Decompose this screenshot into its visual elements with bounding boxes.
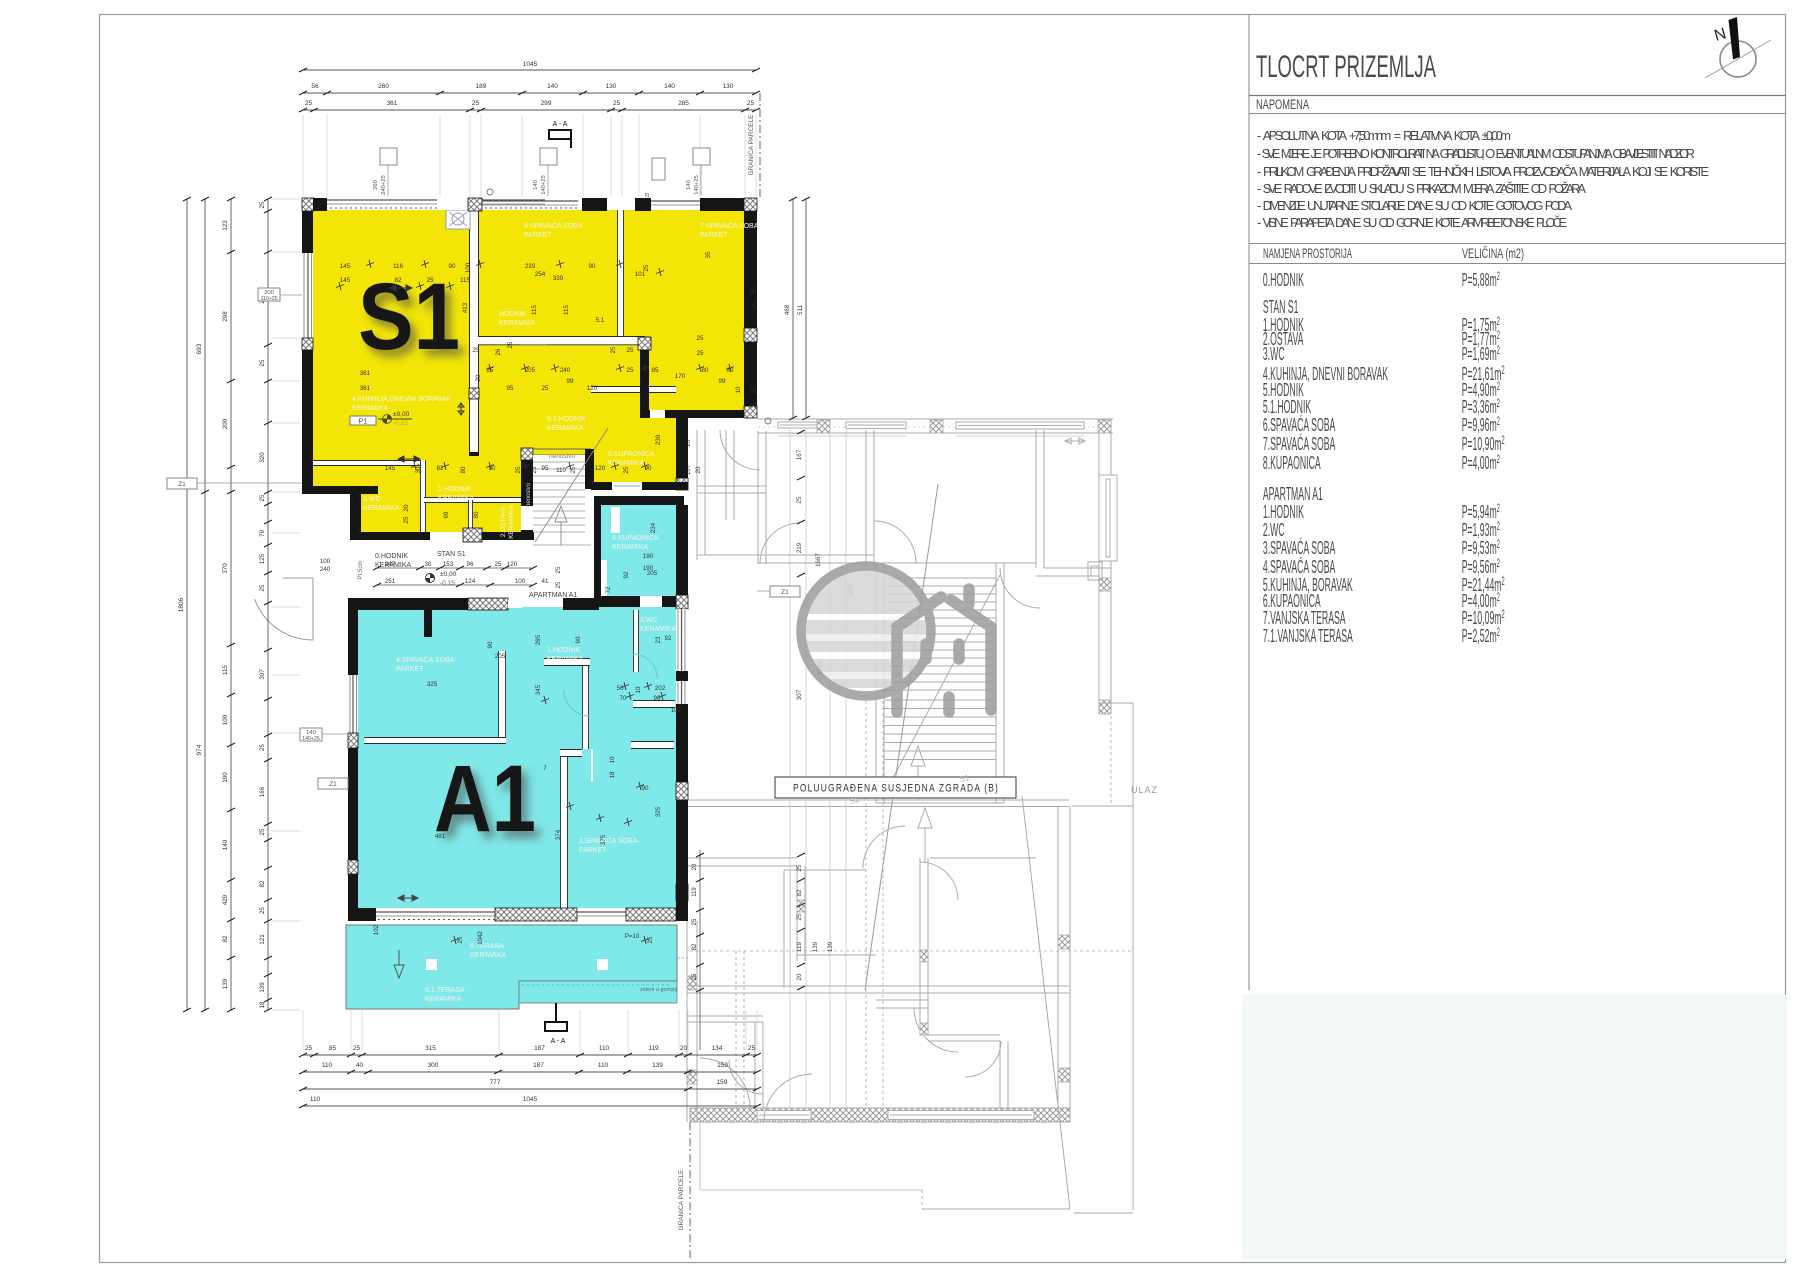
svg-text:166: 166	[259, 786, 266, 797]
svg-text:139: 139	[652, 1062, 663, 1069]
svg-text:25: 25	[259, 828, 266, 835]
svg-text:25: 25	[692, 918, 698, 925]
svg-text:1045: 1045	[523, 61, 538, 68]
svg-text:90: 90	[642, 785, 649, 792]
svg-text:205: 205	[495, 653, 506, 660]
svg-text:82: 82	[222, 935, 229, 942]
svg-text:80: 80	[702, 367, 709, 374]
svg-text:40: 40	[356, 1062, 364, 1069]
svg-text:92: 92	[623, 571, 630, 578]
svg-text:115: 115	[460, 277, 470, 284]
svg-text:190: 190	[643, 553, 654, 560]
svg-text:25: 25	[697, 335, 704, 342]
svg-text:85: 85	[652, 367, 659, 374]
svg-text:339: 339	[553, 275, 564, 282]
svg-text:80: 80	[473, 511, 480, 518]
svg-text:240+25: 240+25	[381, 175, 387, 195]
svg-text:KERAMIKA: KERAMIKA	[608, 460, 645, 467]
svg-text:140+25: 140+25	[302, 736, 320, 742]
svg-text:777: 777	[490, 1079, 501, 1086]
svg-text:POLUUGRAĐENA SUSJEDNA ZGRADA (: POLUUGRAĐENA SUSJEDNA ZGRADA (B)	[793, 783, 999, 795]
svg-text:361: 361	[360, 385, 371, 392]
svg-text:140: 140	[222, 839, 229, 850]
svg-text:25: 25	[747, 100, 755, 107]
svg-text:429: 429	[222, 894, 229, 905]
svg-text:234: 234	[650, 522, 657, 533]
svg-text:P=5,88m2: P=5,88m2	[1462, 270, 1500, 291]
svg-text:20: 20	[403, 504, 410, 511]
svg-text:693: 693	[196, 343, 203, 354]
svg-text:23: 23	[655, 636, 662, 643]
svg-text:320: 320	[259, 452, 266, 463]
svg-text:P=4,00m2: P=4,00m2	[1462, 453, 1500, 474]
svg-text:35: 35	[705, 251, 712, 258]
svg-text:130: 130	[723, 83, 734, 90]
svg-text:140+25: 140+25	[694, 175, 700, 195]
svg-text:50: 50	[617, 685, 624, 692]
svg-text:P=1,69m2: P=1,69m2	[1462, 344, 1500, 365]
svg-text:25: 25	[495, 561, 502, 568]
svg-text:90: 90	[589, 263, 596, 270]
svg-text:- PRILIKOM GRAĐENJA PRIDRŽAVAT: - PRILIKOM GRAĐENJA PRIDRŽAVATI SE TEHNI…	[1257, 164, 1709, 179]
svg-text:NAMJENA PROSTORIJA: NAMJENA PROSTORIJA	[1263, 246, 1352, 261]
svg-text:20: 20	[695, 466, 702, 473]
svg-text:140: 140	[547, 83, 558, 90]
svg-text:307: 307	[259, 669, 266, 680]
svg-text:18: 18	[609, 771, 616, 778]
svg-text:119: 119	[692, 887, 698, 897]
svg-text:25: 25	[555, 581, 562, 588]
svg-text:95: 95	[507, 385, 514, 392]
svg-text:0.HODNIK: 0.HODNIK	[1263, 271, 1304, 291]
svg-text:- VISINE PARAPETA DANE SU OD G: - VISINE PARAPETA DANE SU OD GORNJE KOTE…	[1257, 215, 1567, 230]
svg-text:230: 230	[655, 434, 662, 445]
svg-text:25: 25	[627, 347, 634, 354]
svg-text:10: 10	[735, 386, 742, 393]
svg-text:82: 82	[796, 889, 803, 896]
svg-text:1045: 1045	[523, 1096, 538, 1103]
svg-text:-0,15: -0,15	[393, 420, 408, 427]
svg-text:99: 99	[567, 378, 574, 385]
svg-text:374: 374	[555, 829, 562, 840]
svg-text:481: 481	[435, 833, 446, 840]
svg-text:25: 25	[697, 350, 704, 357]
svg-text:82: 82	[259, 880, 266, 887]
svg-text:PARKET: PARKET	[579, 847, 607, 854]
svg-text:7.SPAVAĆA SOBA: 7.SPAVAĆA SOBA	[1263, 433, 1336, 455]
svg-text:90: 90	[449, 263, 456, 270]
svg-text:25: 25	[259, 359, 266, 366]
svg-text:KERAMIKA: KERAMIKA	[547, 425, 584, 432]
svg-text:VELIČINA (m2): VELIČINA (m2)	[1462, 246, 1524, 261]
svg-text:260: 260	[373, 180, 379, 190]
svg-text:102: 102	[373, 924, 380, 935]
svg-text:110: 110	[599, 1045, 610, 1052]
svg-text:41: 41	[542, 578, 549, 585]
svg-text:±0,00: ±0,00	[440, 571, 457, 578]
svg-text:25: 25	[555, 566, 562, 573]
svg-text:25: 25	[748, 1045, 756, 1052]
svg-text:187: 187	[533, 1062, 544, 1069]
svg-text:260: 260	[378, 83, 389, 90]
svg-text:92: 92	[665, 635, 672, 642]
svg-text:6.KUPAONICA: 6.KUPAONICA	[612, 535, 659, 542]
svg-text:974: 974	[196, 744, 203, 755]
svg-text:123: 123	[222, 220, 229, 231]
svg-text:140: 140	[664, 83, 675, 90]
svg-text:189: 189	[476, 83, 487, 90]
svg-text:167: 167	[796, 449, 803, 460]
svg-text:413: 413	[462, 302, 469, 313]
svg-text:25: 25	[692, 973, 698, 980]
svg-text:375: 375	[600, 834, 607, 845]
svg-text:GRANICA PARCELE: GRANICA PARCELE	[678, 1169, 685, 1231]
svg-text:25: 25	[796, 913, 803, 920]
svg-text:202: 202	[655, 685, 666, 692]
svg-text:25: 25	[531, 466, 538, 473]
svg-text:119: 119	[648, 1045, 659, 1052]
svg-text:1667: 1667	[815, 553, 822, 567]
svg-text:240: 240	[560, 367, 571, 374]
svg-text:7 SPAVAĆA SOBA: 7 SPAVAĆA SOBA	[700, 221, 759, 230]
svg-text:110: 110	[598, 1062, 609, 1069]
svg-text:80: 80	[460, 466, 467, 473]
svg-text:25: 25	[507, 341, 514, 348]
svg-text:25: 25	[305, 1045, 313, 1052]
svg-text:5.1: 5.1	[596, 317, 605, 324]
svg-text:82: 82	[437, 465, 444, 472]
svg-text:240: 240	[320, 566, 331, 573]
svg-text:25: 25	[457, 936, 464, 943]
svg-text:121: 121	[259, 934, 266, 945]
svg-text:110+25: 110+25	[260, 296, 277, 302]
svg-text:139: 139	[827, 941, 834, 952]
svg-text:140+25: 140+25	[541, 175, 547, 195]
svg-text:110: 110	[310, 1096, 321, 1103]
svg-text:134: 134	[712, 1045, 723, 1052]
svg-text:25: 25	[751, 401, 758, 408]
svg-text:295: 295	[535, 634, 542, 645]
svg-text:370: 370	[222, 563, 229, 574]
svg-text:361: 361	[360, 370, 371, 377]
svg-text:PARKET: PARKET	[700, 232, 728, 239]
svg-text:170: 170	[675, 373, 686, 380]
svg-text:110: 110	[322, 1062, 333, 1069]
svg-text:P=2,52m2: P=2,52m2	[1462, 626, 1500, 647]
svg-text:200: 200	[222, 418, 229, 429]
svg-text:100: 100	[465, 262, 472, 273]
svg-text:139: 139	[812, 941, 819, 952]
svg-text:99: 99	[719, 378, 726, 385]
svg-text:- APSOLUTNA KOTA +7,50mnm = RE: - APSOLUTNA KOTA +7,50mnm = RELATIVNA KO…	[1257, 128, 1511, 143]
svg-text:25: 25	[613, 100, 621, 107]
svg-text:120: 120	[587, 385, 598, 392]
svg-text:20: 20	[475, 374, 482, 381]
svg-text:120: 120	[507, 561, 518, 568]
svg-text:100: 100	[320, 558, 331, 565]
svg-text:A - A: A - A	[553, 121, 568, 128]
svg-text:70: 70	[620, 695, 627, 702]
svg-text:100: 100	[515, 578, 526, 585]
svg-text:25: 25	[796, 864, 803, 871]
svg-text:125: 125	[259, 553, 266, 564]
svg-text:219: 219	[796, 542, 803, 553]
svg-text:285: 285	[678, 100, 689, 107]
svg-text:4.SPAVAĆA SOBA: 4.SPAVAĆA SOBA	[396, 655, 455, 664]
svg-text:361: 361	[387, 100, 398, 107]
svg-text:25: 25	[473, 347, 480, 354]
svg-text:KERAMIKA: KERAMIKA	[363, 505, 400, 512]
svg-text:1.HODNIK: 1.HODNIK	[547, 647, 580, 654]
svg-text:102: 102	[671, 707, 682, 714]
svg-text:HODNIK: HODNIK	[499, 311, 527, 318]
svg-text:Z1: Z1	[329, 781, 337, 788]
svg-text:139: 139	[222, 978, 229, 989]
svg-text:116: 116	[393, 263, 403, 270]
svg-text:S1: S1	[358, 264, 460, 370]
svg-text:NAPOMENA: NAPOMENA	[1256, 97, 1309, 112]
svg-text:140: 140	[686, 180, 692, 190]
svg-text:25: 25	[305, 100, 313, 107]
svg-text:GRANICA PARCELE: GRANICA PARCELE	[748, 114, 755, 176]
svg-text:25: 25	[542, 385, 549, 392]
svg-text:153: 153	[443, 561, 454, 568]
svg-text:25: 25	[623, 466, 630, 473]
svg-text:247: 247	[385, 561, 396, 568]
svg-text:5.1.HODNIK: 5.1.HODNIK	[547, 416, 586, 423]
svg-text:159: 159	[717, 1062, 728, 1069]
svg-text:25: 25	[610, 346, 617, 353]
svg-text:A1: A1	[434, 746, 536, 852]
svg-text:90: 90	[575, 636, 582, 643]
svg-text:130: 130	[606, 83, 617, 90]
svg-text:145: 145	[340, 277, 351, 284]
svg-text:7.1.VANJSKA TERASA: 7.1.VANJSKA TERASA	[1263, 627, 1353, 647]
svg-text:25: 25	[259, 494, 266, 501]
svg-text:6.1.TERASA: 6.1.TERASA	[425, 987, 465, 994]
svg-text:3.WC: 3.WC	[363, 496, 381, 503]
svg-text:190: 190	[643, 565, 654, 572]
svg-text:8.KUPAONICA: 8.KUPAONICA	[1263, 454, 1321, 474]
svg-text:2.OSTAVA: 2.OSTAVA	[500, 506, 507, 537]
svg-text:25: 25	[751, 286, 758, 293]
svg-text:239: 239	[525, 263, 536, 270]
svg-text:187: 187	[534, 1045, 545, 1052]
svg-text:Z1: Z1	[178, 481, 186, 488]
svg-text:254: 254	[535, 271, 546, 278]
svg-text:nenosivo: nenosivo	[549, 453, 575, 460]
svg-text:325: 325	[427, 681, 438, 688]
svg-text:KERAMIKA: KERAMIKA	[470, 952, 507, 959]
svg-text:82: 82	[692, 943, 698, 950]
svg-text:468: 468	[784, 304, 791, 315]
svg-text:KERAMIKA: KERAMIKA	[352, 405, 389, 412]
svg-text:79: 79	[259, 530, 266, 537]
svg-text:4.KUHINJA,DNEVNI BORAVAK: 4.KUHINJA,DNEVNI BORAVAK	[352, 396, 451, 403]
svg-text:300: 300	[428, 1062, 439, 1069]
svg-text:25: 25	[259, 201, 266, 208]
svg-text:7: 7	[543, 765, 547, 772]
svg-text:KERAMIKA: KERAMIKA	[425, 996, 462, 1003]
svg-text:Zl: Zl	[645, 193, 651, 198]
svg-text:345: 345	[535, 684, 542, 695]
svg-text:6.TERASA: 6.TERASA	[470, 943, 504, 950]
svg-text:82: 82	[395, 277, 402, 284]
svg-text:511: 511	[797, 305, 804, 315]
svg-text:APARTMAN A1: APARTMAN A1	[529, 592, 577, 599]
svg-text:3.SPAVAĆA SOBA: 3.SPAVAĆA SOBA	[1263, 537, 1336, 559]
svg-text:25: 25	[647, 936, 654, 943]
svg-text:25: 25	[403, 516, 410, 523]
svg-text:ULAZ: ULAZ	[1131, 785, 1158, 795]
svg-text:115: 115	[222, 665, 229, 675]
svg-text:25: 25	[472, 100, 480, 107]
svg-text:190: 190	[222, 772, 229, 783]
svg-text:PARKET: PARKET	[524, 232, 552, 239]
svg-text:3.SPAVAĆA SOBA: 3.SPAVAĆA SOBA	[579, 836, 638, 845]
svg-text:25: 25	[751, 301, 758, 308]
svg-text:124: 124	[465, 578, 476, 585]
svg-text:P1: P1	[358, 417, 367, 426]
svg-text:- DIMENZIJE UNUTARNJE STOLARIJ: - DIMENZIJE UNUTARNJE STOLARIJE DANE SU …	[1257, 198, 1572, 213]
svg-text:±0,00: ±0,00	[393, 411, 410, 418]
svg-text:25: 25	[796, 496, 803, 503]
svg-text:1042: 1042	[477, 931, 484, 945]
svg-text:KERAMIKA: KERAMIKA	[547, 656, 584, 663]
svg-text:115: 115	[563, 305, 570, 315]
svg-text:1.HODNIK: 1.HODNIK	[438, 486, 471, 493]
svg-text:KERAMIKA: KERAMIKA	[640, 626, 677, 633]
svg-text:115: 115	[531, 305, 538, 315]
svg-text:- SVE MJERE JE POTREBNO KONTRO: - SVE MJERE JE POTREBNO KONTROLIRATI NA …	[1257, 146, 1695, 161]
svg-text:-0,15: -0,15	[440, 580, 455, 587]
svg-text:251: 251	[385, 578, 396, 585]
svg-text:- SVE RADOVE IZVODITI U SKLADU: - SVE RADOVE IZVODITI U SKLADU S PRIKAZO…	[1257, 181, 1586, 196]
svg-text:P=9,96m2: P=9,96m2	[1462, 415, 1500, 436]
svg-text:90: 90	[487, 641, 494, 648]
svg-text:10: 10	[635, 686, 642, 693]
svg-text:140: 140	[533, 180, 539, 190]
svg-text:298: 298	[222, 311, 229, 322]
svg-text:90: 90	[654, 695, 661, 702]
svg-text:159: 159	[717, 1079, 728, 1086]
svg-text:25: 25	[643, 264, 650, 271]
svg-text:72: 72	[605, 586, 612, 593]
svg-text:56: 56	[311, 83, 319, 90]
svg-text:145: 145	[385, 465, 396, 472]
svg-text:110: 110	[556, 467, 566, 474]
svg-text:85: 85	[329, 1045, 337, 1052]
svg-text:STAN S1: STAN S1	[437, 551, 466, 558]
svg-text:nenosivo: nenosivo	[526, 482, 532, 507]
svg-text:P=9,53m2: P=9,53m2	[1462, 538, 1500, 559]
svg-text:25: 25	[751, 386, 758, 393]
svg-text:PARKET: PARKET	[396, 666, 424, 673]
svg-text:26: 26	[495, 348, 502, 355]
svg-text:A - A: A - A	[551, 1038, 566, 1045]
svg-text:119: 119	[796, 942, 803, 952]
svg-text:KERAMIKA: KERAMIKA	[612, 544, 649, 551]
svg-text:20: 20	[796, 973, 803, 980]
svg-text:6 SPAVAĆA SOBA: 6 SPAVAĆA SOBA	[524, 221, 583, 230]
svg-text:2.WC: 2.WC	[640, 617, 658, 624]
svg-text:KERAMIKA: KERAMIKA	[499, 320, 536, 327]
svg-text:315: 315	[425, 1045, 436, 1052]
svg-text:3.WC: 3.WC	[1263, 345, 1285, 365]
svg-text:Z1: Z1	[781, 589, 789, 596]
svg-text:Pr.5cm: Pr.5cm	[358, 561, 364, 580]
svg-text:25: 25	[259, 744, 266, 751]
svg-text:25: 25	[427, 277, 434, 284]
svg-text:30: 30	[425, 561, 432, 568]
svg-text:zeleni u gornjoj: zeleni u gornjoj	[640, 987, 677, 993]
svg-text:20: 20	[680, 1045, 688, 1052]
svg-text:P=10: P=10	[625, 933, 640, 940]
svg-text:145: 145	[340, 263, 351, 270]
svg-text:KERAMIKA: KERAMIKA	[508, 505, 515, 539]
svg-text:25: 25	[627, 367, 634, 374]
svg-text:25: 25	[259, 907, 266, 914]
svg-text:139: 139	[259, 982, 266, 993]
svg-text:20: 20	[692, 863, 698, 870]
svg-text:205: 205	[525, 367, 536, 374]
svg-text:18: 18	[259, 1001, 266, 1008]
svg-text:10: 10	[609, 756, 616, 763]
svg-text:6.SPAVAĆA SOBA: 6.SPAVAĆA SOBA	[1263, 414, 1336, 436]
svg-text:KERAMIKA: KERAMIKA	[438, 495, 475, 502]
svg-text:25: 25	[353, 1045, 361, 1052]
svg-text:25: 25	[259, 584, 266, 591]
svg-text:TLOCRT PRIZEMLJA: TLOCRT PRIZEMLJA	[1256, 48, 1436, 84]
svg-text:100: 100	[222, 714, 229, 725]
svg-text:8.KUPAONICA: 8.KUPAONICA	[608, 451, 655, 458]
svg-text:1806: 1806	[178, 597, 185, 612]
svg-text:96: 96	[467, 561, 474, 568]
svg-text:325: 325	[655, 806, 662, 817]
svg-text:0.HODNIK: 0.HODNIK	[375, 553, 408, 560]
svg-text:69: 69	[443, 511, 450, 518]
svg-text:95: 95	[542, 465, 549, 472]
svg-text:120: 120	[595, 465, 606, 472]
svg-text:299: 299	[541, 100, 552, 107]
svg-text:307: 307	[796, 689, 803, 700]
